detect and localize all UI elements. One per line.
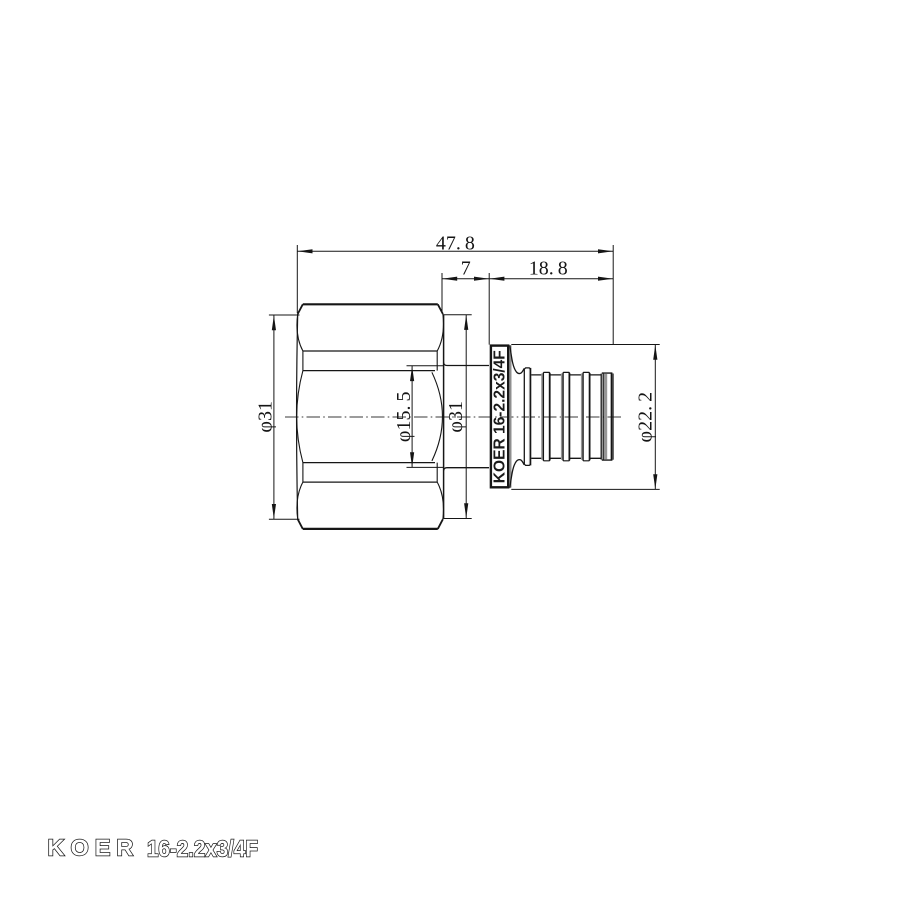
- svg-text:7: 7: [461, 258, 471, 280]
- svg-text:φ31: φ31: [445, 401, 467, 433]
- svg-text:47. 8: 47. 8: [436, 232, 475, 254]
- svg-text:KOER: KOER: [48, 835, 140, 861]
- svg-text:16-2.2x3/4F: 16-2.2x3/4F: [147, 835, 258, 862]
- svg-text:18. 8: 18. 8: [529, 258, 568, 280]
- svg-text:KOER 16-2.2x3/4F: KOER 16-2.2x3/4F: [491, 350, 508, 483]
- svg-text:φ31: φ31: [255, 401, 277, 433]
- svg-text:φ15. 5: φ15. 5: [393, 392, 415, 443]
- svg-text:φ22. 2: φ22. 2: [635, 392, 657, 443]
